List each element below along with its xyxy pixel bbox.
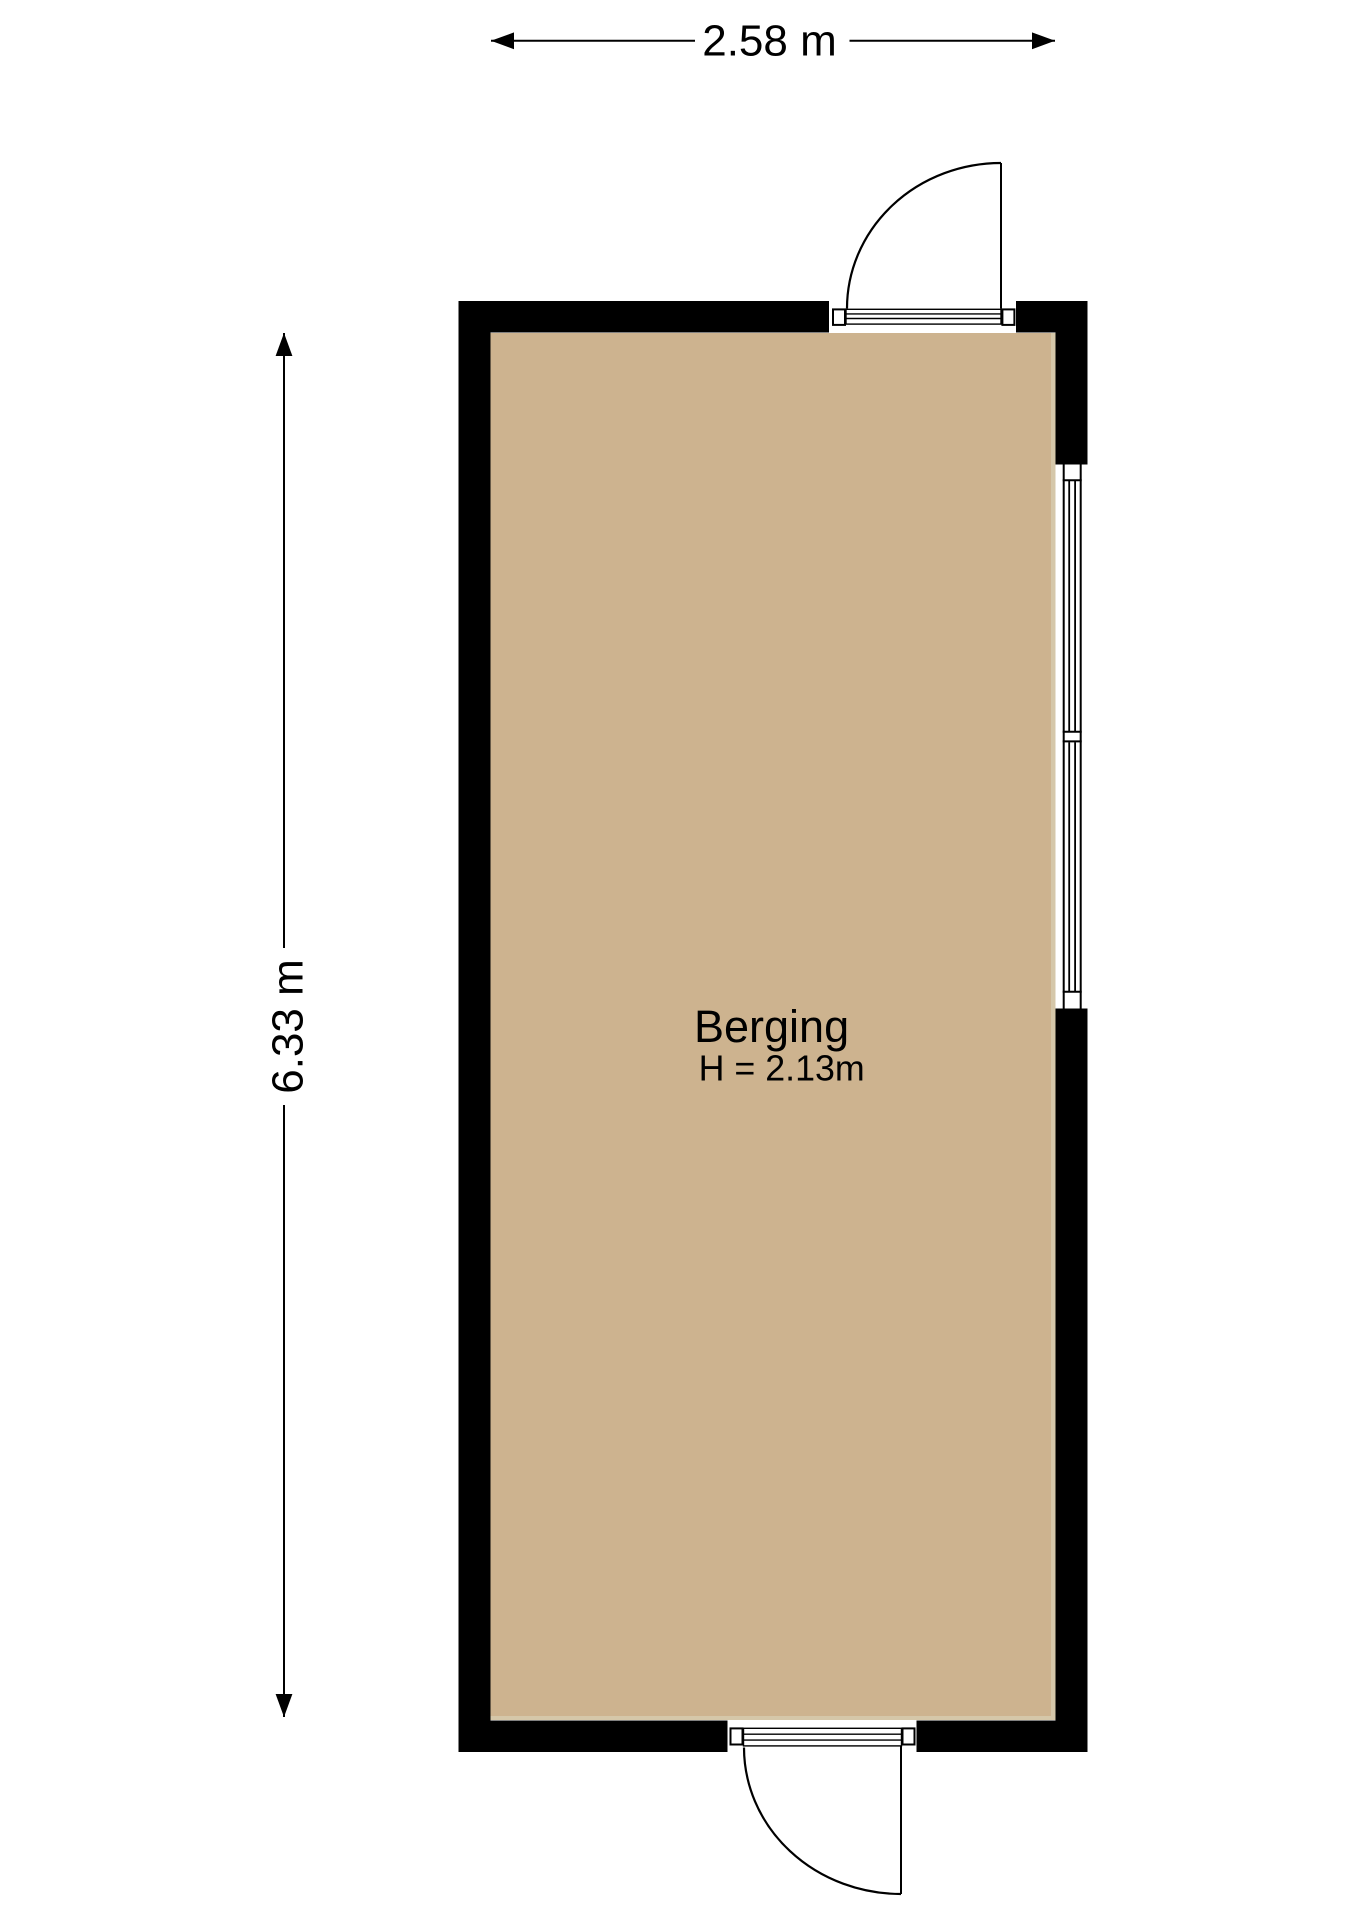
svg-text:H = 2.13m: H = 2.13m bbox=[699, 1049, 865, 1089]
svg-text:6.33 m: 6.33 m bbox=[264, 959, 313, 1094]
svg-text:2.58 m: 2.58 m bbox=[702, 17, 837, 66]
svg-text:Berging: Berging bbox=[694, 1001, 849, 1052]
